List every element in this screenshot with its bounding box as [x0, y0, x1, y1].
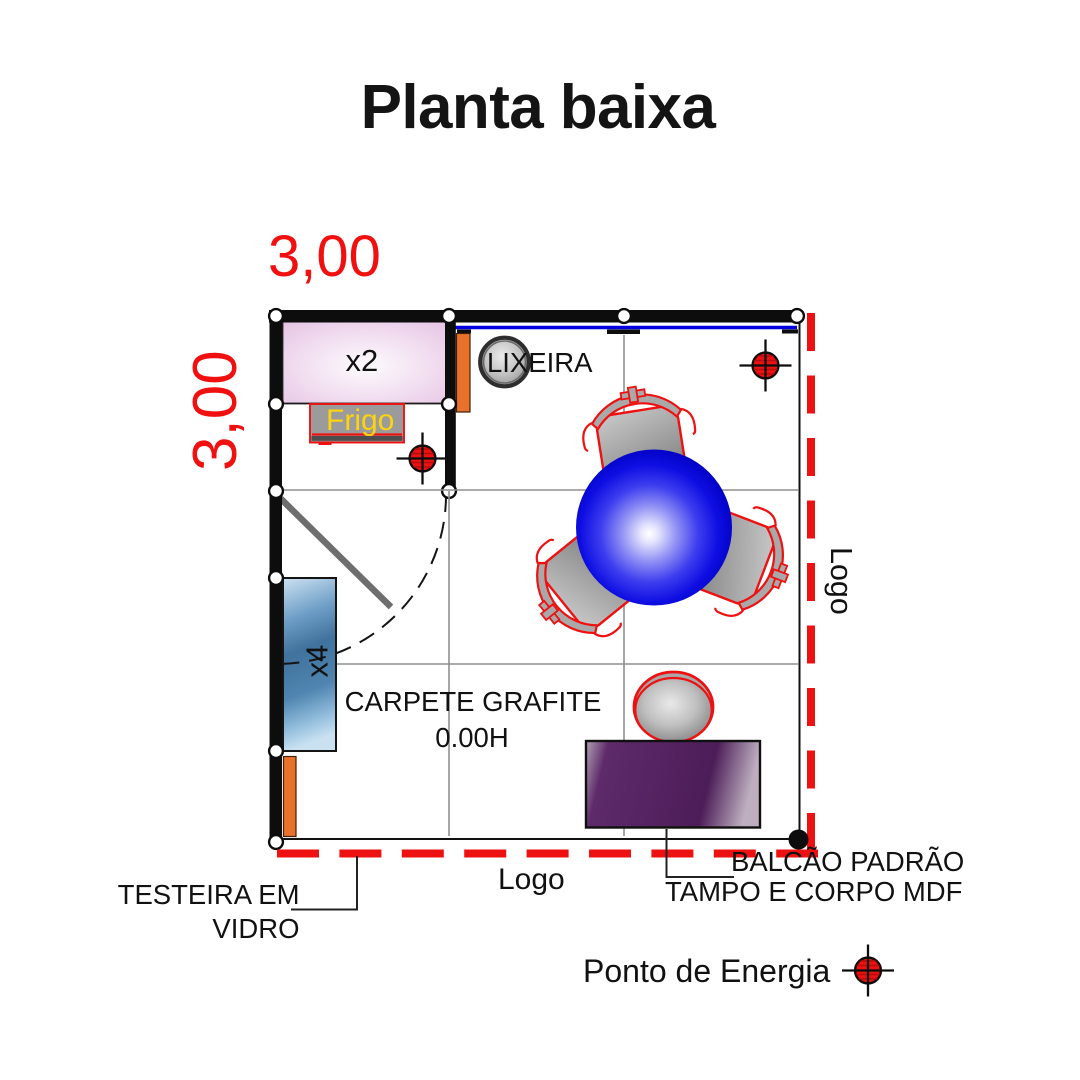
svg-text:TAMPO E CORPO MDF: TAMPO E CORPO MDF — [665, 876, 962, 907]
svg-text:3,00: 3,00 — [181, 350, 250, 471]
svg-text:0.00H: 0.00H — [435, 722, 508, 753]
svg-text:3,00: 3,00 — [268, 224, 381, 289]
svg-text:CARPETE GRAFITE: CARPETE GRAFITE — [345, 686, 602, 717]
svg-text:BALCÃO PADRÃO: BALCÃO PADRÃO — [731, 846, 964, 877]
svg-text:Planta baixa: Planta baixa — [361, 73, 717, 142]
svg-text:Frigo: Frigo — [326, 404, 394, 437]
svg-text:Ponto de Energia: Ponto de Energia — [583, 953, 831, 989]
svg-text:VIDRO: VIDRO — [212, 913, 299, 944]
svg-text:TESTEIRA EM: TESTEIRA EM — [118, 879, 300, 910]
svg-text:x4: x4 — [300, 645, 335, 678]
svg-text:LIXEIRA: LIXEIRA — [487, 347, 593, 378]
svg-text:Logo: Logo — [824, 547, 858, 615]
svg-text:x2: x2 — [346, 343, 379, 378]
svg-text:Logo: Logo — [498, 863, 565, 896]
